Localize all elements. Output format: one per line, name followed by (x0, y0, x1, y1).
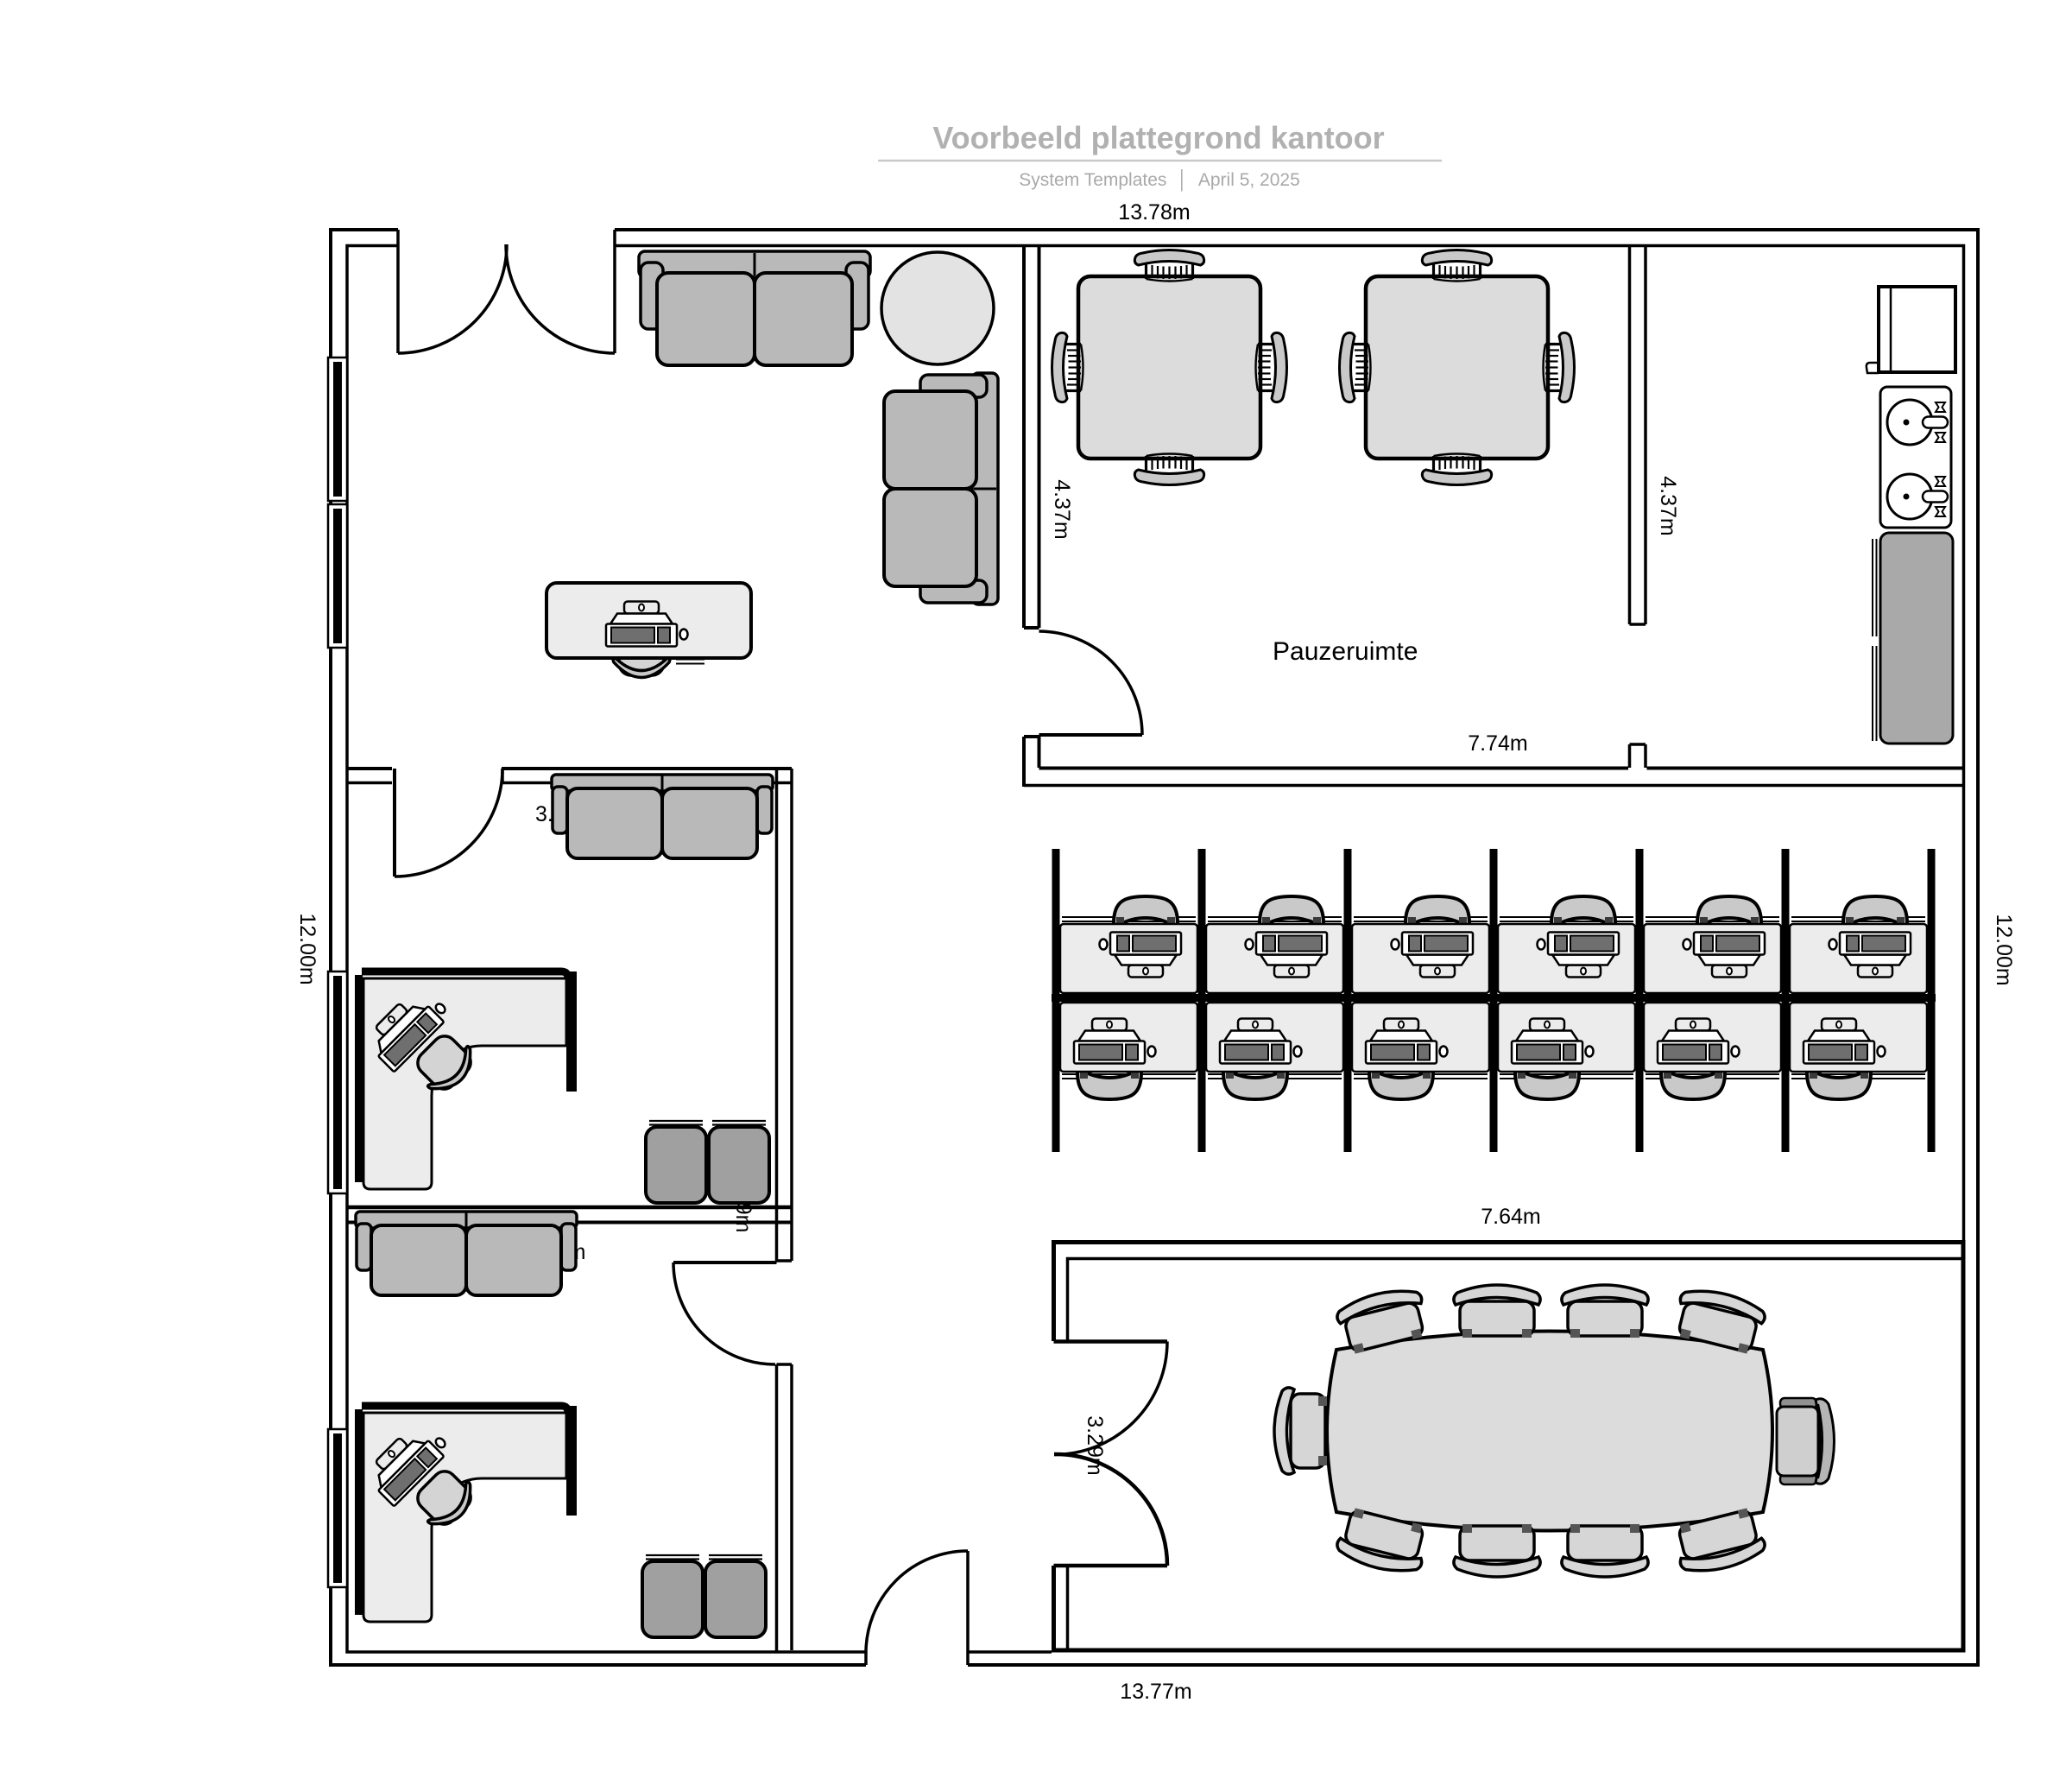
svg-text:System Templates │ April 5,: System Templates │ April 5, 2025 (1019, 168, 1300, 192)
svg-text:7.74m: 7.74m (1468, 731, 1527, 756)
svg-text:13.78m: 13.78m (1118, 200, 1190, 225)
svg-text:Voorbeeld plattegrond kantoor: Voorbeeld plattegrond kantoor (932, 120, 1384, 155)
svg-text:Pauzeruimte: Pauzeruimte (1273, 637, 1418, 666)
svg-text:4.37m: 4.37m (1656, 476, 1680, 535)
svg-text:12.00m: 12.00m (295, 913, 319, 984)
svg-text:4.37m: 4.37m (1050, 479, 1074, 539)
svg-text:7.64m: 7.64m (1481, 1205, 1540, 1229)
svg-text:13.77m: 13.77m (1120, 1680, 1191, 1704)
svg-text:12.00m: 12.00m (1992, 914, 2016, 985)
svg-text:3.29m: 3.29m (1083, 1415, 1107, 1475)
